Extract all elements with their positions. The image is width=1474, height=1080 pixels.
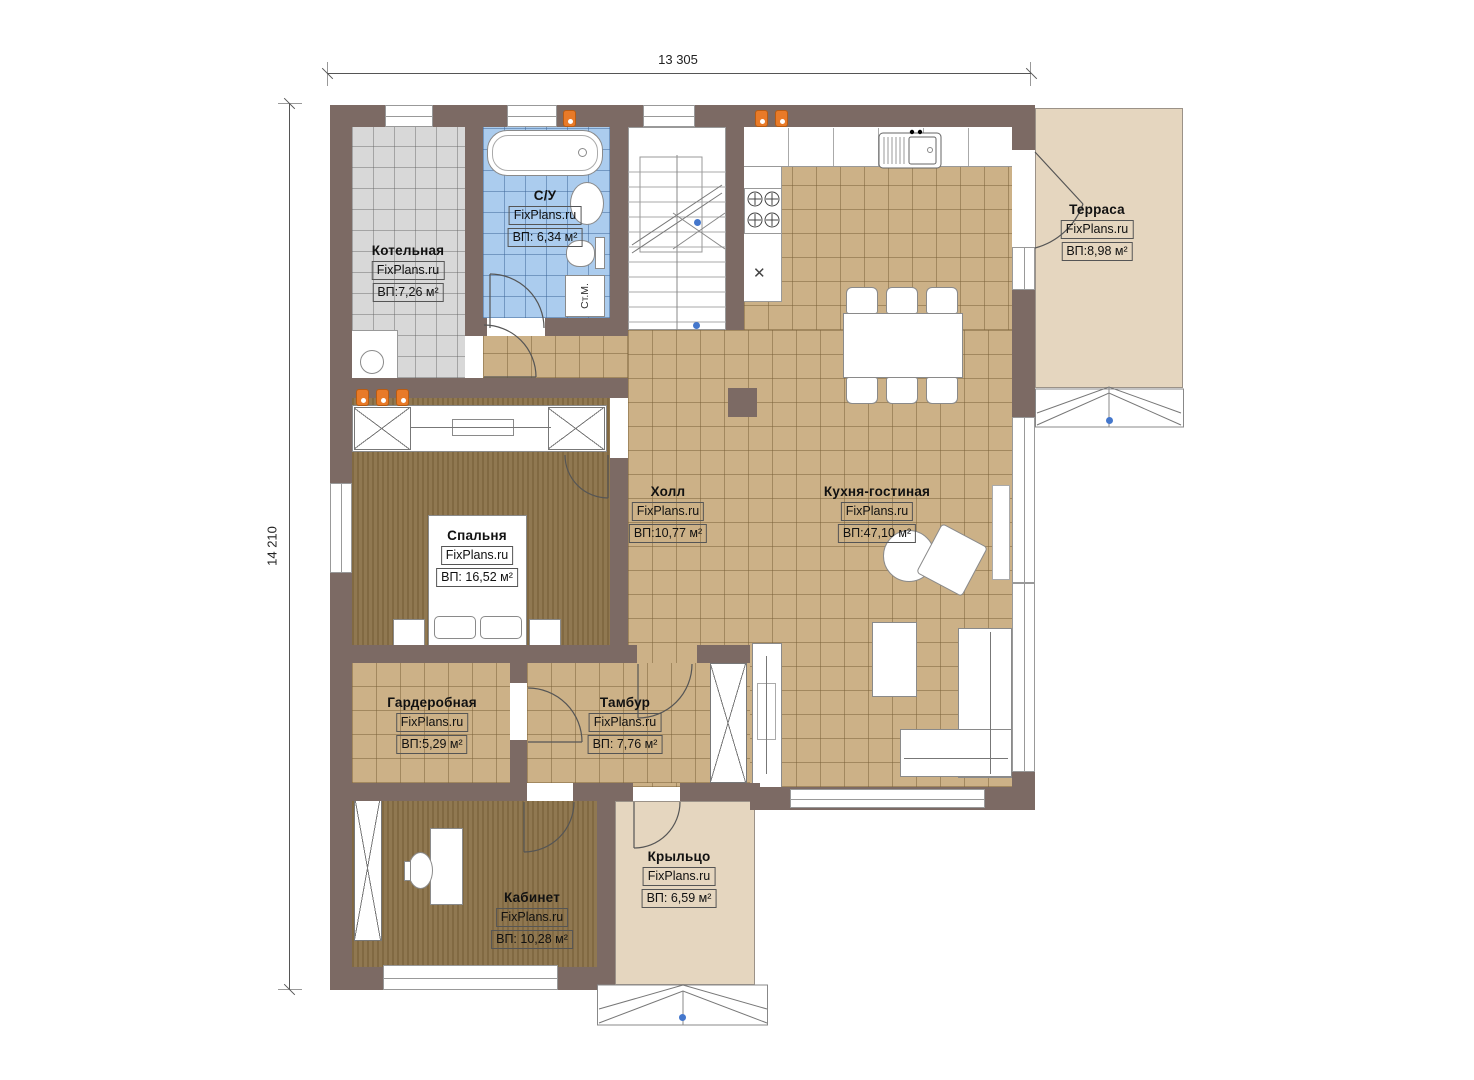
room-name: Кабинет: [504, 890, 560, 905]
vent-icon: [396, 389, 409, 406]
coffee-table: [872, 622, 917, 697]
room-label-wardrobe-room: Гардеробная FixPlans.ru ВП:5,29 м²: [387, 695, 477, 754]
room-brand: FixPlans.ru: [632, 502, 705, 521]
window: [1012, 417, 1035, 583]
room-label-vestibule: Тамбур FixPlans.ru ВП: 7,76 м²: [588, 695, 663, 754]
vent-icon: [755, 110, 768, 127]
chair: [926, 287, 958, 314]
wall-segment: [680, 783, 760, 801]
room-label-boiler-room: Котельная FixPlans.ru ВП:7,26 м²: [372, 243, 445, 302]
dimension-line-top: [327, 73, 1031, 74]
room-area: ВП: 16,52 м²: [436, 568, 518, 587]
room-label-office: Кабинет FixPlans.ru ВП: 10,28 м²: [491, 890, 573, 949]
room-area: ВП: 7,76 м²: [588, 735, 663, 754]
column: [728, 388, 757, 417]
room-label-bathroom: С/У FixPlans.ru ВП: 6,34 м²: [508, 188, 583, 247]
room-name: Холл: [651, 484, 686, 499]
counter-x-mark: ✕: [753, 264, 766, 282]
room-name: Кухня-гостиная: [824, 484, 930, 499]
window: [1012, 583, 1035, 772]
window: [383, 965, 558, 990]
window: [643, 105, 695, 127]
wall-segment: [610, 378, 628, 398]
room-area: ВП: 10,28 м²: [491, 930, 573, 949]
radiator: [992, 485, 1010, 580]
door-arc-bedroom: [562, 452, 612, 510]
vent-icon: [356, 389, 369, 406]
window: [790, 789, 985, 808]
chair: [846, 377, 878, 404]
wall-segment: [610, 105, 628, 336]
dining-table: [843, 313, 963, 378]
room-brand: FixPlans.ru: [496, 908, 569, 927]
floor-kitchen-upper: [744, 167, 1012, 330]
room-label-hall: Холл FixPlans.ru ВП:10,77 м²: [629, 484, 707, 543]
room-area: ВП: 6,34 м²: [508, 228, 583, 247]
room-label-porch: Крыльцо FixPlans.ru ВП: 6,59 м²: [642, 849, 717, 908]
marker-dot: [1106, 417, 1113, 424]
room-brand: FixPlans.ru: [1061, 220, 1134, 239]
chair: [886, 377, 918, 404]
wall-segment: [510, 645, 527, 683]
marker-dot: [694, 219, 701, 226]
sofa-horizontal: [900, 729, 1012, 777]
closet: [354, 795, 382, 941]
boiler-sink: [360, 350, 384, 374]
room-name: Крыльцо: [648, 849, 711, 864]
terrace-steps: [1035, 383, 1185, 433]
room-brand: FixPlans.ru: [441, 546, 514, 565]
office-chair-back: [404, 861, 411, 881]
bathtub-drain: [578, 148, 587, 157]
office-chair: [408, 852, 433, 889]
window: [1012, 247, 1035, 290]
chair: [886, 287, 918, 314]
room-name: С/У: [534, 188, 557, 203]
desk: [430, 828, 463, 905]
wall-segment: [726, 105, 744, 330]
sofa-back-line: [990, 632, 991, 774]
room-name: Тамбур: [600, 695, 650, 710]
wall-segment: [330, 783, 523, 801]
door-arc-boiler-room: [481, 322, 539, 380]
wall-segment: [330, 645, 637, 663]
room-name: Спальня: [447, 528, 507, 543]
washing-machine-label: Ст.М.: [579, 283, 591, 309]
floor-plan-canvas: 13 305 14 210: [0, 0, 1474, 1080]
room-name: Котельная: [372, 243, 444, 258]
room-area: ВП:5,29 м²: [396, 735, 467, 754]
kitchen-sink: [878, 128, 942, 170]
wall-segment: [697, 645, 750, 663]
wall-segment: [573, 783, 633, 801]
marker-dot: [679, 1014, 686, 1021]
marker-dot: [693, 322, 700, 329]
vent-icon: [376, 389, 389, 406]
wall-segment: [330, 378, 628, 398]
porch-steps: [597, 983, 769, 1029]
dimension-line-left: [289, 103, 290, 990]
closet: [710, 663, 747, 783]
closet: [548, 407, 605, 450]
room-area: ВП:10,77 м²: [629, 524, 707, 543]
room-brand: FixPlans.ru: [589, 713, 662, 732]
door-arc-wardrobe-room: [525, 683, 585, 745]
wall-segment: [465, 105, 483, 332]
nightstand: [393, 619, 425, 648]
room-brand: FixPlans.ru: [841, 502, 914, 521]
door-arc-porch: [631, 799, 683, 851]
vent-icon: [563, 110, 576, 127]
room-label-terrace: Терраса FixPlans.ru ВП:8,98 м²: [1061, 202, 1134, 261]
wall-segment: [1012, 105, 1035, 150]
wall-segment: [1012, 290, 1035, 417]
wall-segment: [597, 801, 615, 985]
room-brand: FixPlans.ru: [372, 261, 445, 280]
room-label-bedroom: Спальня FixPlans.ru ВП: 16,52 м²: [436, 528, 518, 587]
toilet-tank: [595, 237, 605, 269]
room-name: Гардеробная: [387, 695, 477, 710]
cabinet-line: [766, 656, 767, 774]
room-brand: FixPlans.ru: [509, 206, 582, 225]
window: [330, 483, 352, 573]
pillow: [434, 616, 476, 639]
chair: [926, 377, 958, 404]
door-arc-office: [521, 799, 577, 855]
dimension-label-left: 14 210: [265, 526, 280, 566]
clothes-rail: [411, 427, 551, 428]
washing-machine: Ст.М.: [565, 275, 605, 317]
vent-icon: [775, 110, 788, 127]
nightstand: [529, 619, 561, 648]
window: [507, 105, 557, 127]
closet: [354, 407, 411, 450]
window: [385, 105, 433, 127]
room-area: ВП:47,10 м²: [838, 524, 916, 543]
room-brand: FixPlans.ru: [396, 713, 469, 732]
pillow: [480, 616, 522, 639]
room-label-kitchen-living: Кухня-гостиная FixPlans.ru ВП:47,10 м²: [824, 484, 930, 543]
room-area: ВП: 6,59 м²: [642, 889, 717, 908]
wall-segment: [610, 458, 628, 663]
dimension-label-top: 13 305: [658, 52, 698, 67]
chair: [846, 287, 878, 314]
room-area: ВП:7,26 м²: [372, 283, 443, 302]
stove: [744, 188, 782, 234]
sofa-back-line: [904, 758, 1008, 759]
wall-segment: [1012, 772, 1035, 810]
room-brand: FixPlans.ru: [643, 867, 716, 886]
room-name: Терраса: [1069, 202, 1125, 217]
staircase: [628, 127, 726, 330]
room-area: ВП:8,98 м²: [1061, 242, 1132, 261]
